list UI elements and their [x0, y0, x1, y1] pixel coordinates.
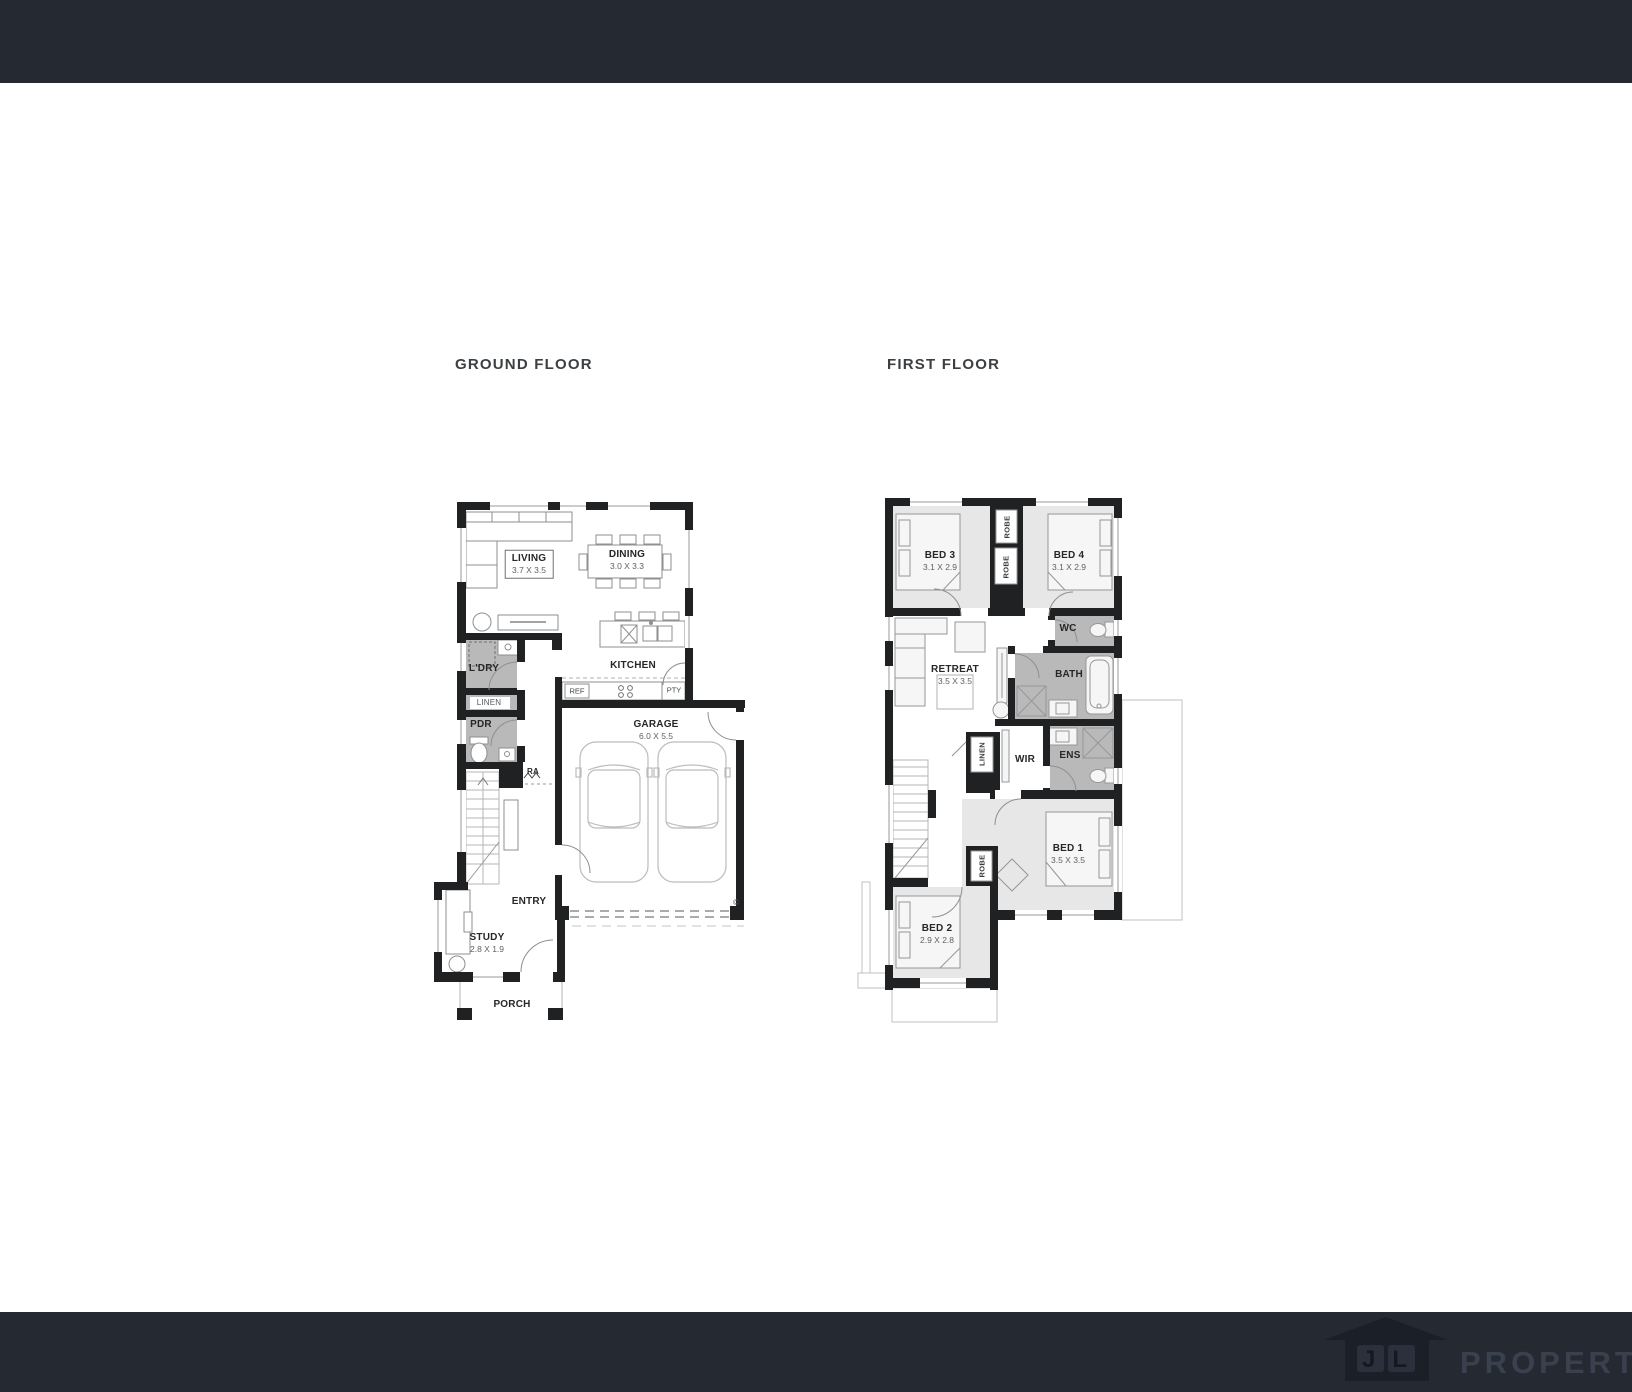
room-label-bed1: BED 13.5 X 3.5: [1051, 844, 1085, 865]
first-floor-drawing: [840, 470, 1200, 1030]
room-label-living: LIVING3.7 X 3.5: [505, 550, 554, 579]
ground-floor-plan: LIVING3.7 X 3.5 DINING3.0 X 3.3 KITCHEN …: [400, 470, 760, 1030]
room-label-linen-first: LINEN: [978, 742, 986, 766]
room-label-wir: WIR: [1015, 755, 1035, 765]
room-label-ens: ENS: [1059, 751, 1080, 761]
room-label-porch: PORCH: [493, 1000, 530, 1010]
room-label-pty: PTY: [667, 686, 682, 694]
first-floor-title: FIRST FLOOR: [887, 357, 1000, 372]
room-label-wc: WC: [1059, 624, 1076, 634]
room-label-bath: BATH: [1055, 670, 1083, 680]
room-label-study: STUDY2.8 X 1.9: [470, 933, 505, 954]
room-label-robe-2: ROBE: [1002, 556, 1010, 579]
logo-name: PROPERTY: [1460, 1347, 1632, 1378]
ground-floor-drawing: [400, 470, 760, 1030]
room-label-garage: GARAGE6.0 X 5.5: [633, 720, 678, 741]
room-label-pdr: PDR: [470, 720, 492, 730]
house-icon: JL: [1322, 1314, 1454, 1384]
room-label-retreat: RETREAT3.5 X 3.5: [931, 665, 979, 686]
page: { "titles": { "ground": "GROUND FLOOR", …: [0, 0, 1632, 1392]
jl-property-logo: JL PROPERTY: [1322, 1314, 1632, 1384]
room-label-bed4: BED 43.1 X 2.9: [1052, 551, 1086, 572]
room-label-ref: REF: [570, 687, 585, 695]
ground-floor-title: GROUND FLOOR: [455, 357, 593, 372]
room-label-linen: LINEN: [477, 699, 502, 707]
room-label-kitchen: KITCHEN: [610, 661, 656, 671]
room-label-robe-1: ROBE: [1003, 516, 1011, 539]
room-label-ldry: L'DRY: [469, 664, 499, 674]
header-band: [0, 0, 1632, 83]
room-label-bed2: BED 22.9 X 2.8: [920, 924, 954, 945]
first-floor-plan: BED 33.1 X 2.9 BED 43.1 X 2.9 ROBE ROBE …: [840, 470, 1200, 1030]
room-label-bed3: BED 33.1 X 2.9: [923, 551, 957, 572]
copyright-mark: ©: [733, 899, 739, 907]
room-label-ra: RA: [527, 768, 539, 776]
room-label-entry: ENTRY: [512, 897, 547, 907]
room-label-dining: DINING3.0 X 3.3: [609, 550, 645, 571]
room-label-robe-3: ROBE: [978, 855, 986, 878]
logo-initials: JL: [1362, 1346, 1424, 1373]
